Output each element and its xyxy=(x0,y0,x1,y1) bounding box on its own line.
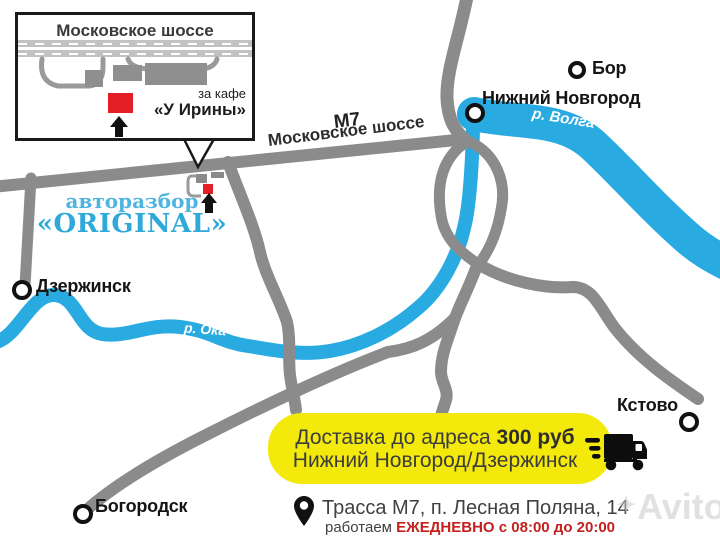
brand-text: авторазбор «ORIGINAL» xyxy=(36,191,228,237)
road-dzerzhinsk xyxy=(25,178,31,286)
city-label-bogorodsk: Богородск xyxy=(95,496,187,517)
city-label-nizhny-novgorod: Нижний Новгород xyxy=(482,88,640,109)
brand-line2: «ORIGINAL» xyxy=(36,211,228,237)
delivery-line2: Нижний Новгород/Дзержинск xyxy=(268,449,602,472)
city-label-dzerzhinsk: Дзержинск xyxy=(36,276,131,297)
delivery-price: 300 руб xyxy=(497,426,575,449)
road-west xyxy=(228,162,296,410)
inset-note-line1: за кафе xyxy=(154,87,246,100)
inset-note: за кафе «У Ирины» xyxy=(154,87,246,119)
delivery-line1: Доставка до адреса 300 руб xyxy=(268,426,602,449)
city-marker-bor xyxy=(570,63,584,77)
location-pin-icon xyxy=(294,496,314,527)
hours-value: ЕЖЕДНЕВНО с 08:00 до 20:00 xyxy=(396,519,615,536)
city-marker-kstovo xyxy=(681,414,697,430)
road-loop-south xyxy=(455,263,478,318)
inset-shapes xyxy=(18,15,252,138)
city-marker-bogorodsk xyxy=(75,506,91,522)
river-volga xyxy=(474,114,720,264)
delivery-banner: Доставка до адреса 300 руб Нижний Новгор… xyxy=(268,413,612,484)
city-label-kstovo: Кстово xyxy=(617,395,678,416)
delivery-line1-text: Доставка до адреса xyxy=(295,426,490,449)
inset-shop-red-square xyxy=(108,93,133,113)
city-marker-dzerzhinsk xyxy=(14,282,30,298)
inset-map: Московское шоссе за кафе «У Ирины» xyxy=(15,12,255,141)
inset-note-line2: «У Ирины» xyxy=(154,100,246,119)
working-hours: работаем ЕЖЕДНЕВНО с 08:00 до 20:00 xyxy=(325,519,615,536)
truck-icon xyxy=(585,434,647,471)
road-kstovo xyxy=(478,264,698,399)
hours-prefix: работаем xyxy=(325,519,392,536)
arrow-up-icon xyxy=(110,116,128,137)
brand-line1: авторазбор xyxy=(36,191,228,211)
city-label-bor: Бор xyxy=(592,58,626,79)
address-text: Трасса М7, п. Лесная Поляна, 14 xyxy=(322,497,629,520)
map-image: Бор Нижний Новгород Дзержинск Кстово Бог… xyxy=(0,0,720,540)
river-label-oka: р. Ока xyxy=(183,320,226,339)
city-marker-nizhny-novgorod xyxy=(467,105,483,121)
